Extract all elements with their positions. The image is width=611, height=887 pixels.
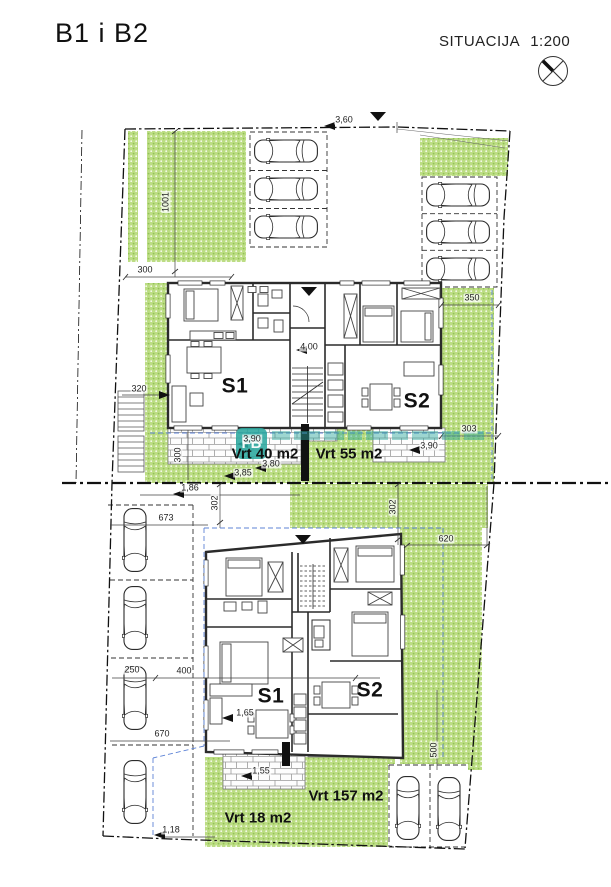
plan-scale-label: 1:200 (530, 33, 570, 50)
site-plan-drawing: B1 i B2 SITUACIJA1:200 FB S1 S2 S1 S2 Vr… (0, 0, 611, 887)
watermark-text-blocks (272, 431, 484, 440)
car-icons-upper-center (255, 138, 318, 239)
building-lower (204, 534, 405, 758)
car-icons-upper-right (427, 182, 490, 281)
parking-lower-left (108, 505, 193, 836)
plan-caption: SITUACIJA1:200 (439, 33, 570, 50)
page-title: B1 i B2 (55, 18, 149, 49)
watermark-logo: FB (236, 428, 267, 459)
building-upper (166, 281, 443, 430)
plan-type-label: SITUACIJA (439, 33, 520, 50)
car-icons-lower-left (122, 509, 147, 824)
exterior-stairs (118, 391, 144, 472)
north-symbol-icon (539, 57, 568, 86)
site-plan-svg (0, 0, 611, 887)
